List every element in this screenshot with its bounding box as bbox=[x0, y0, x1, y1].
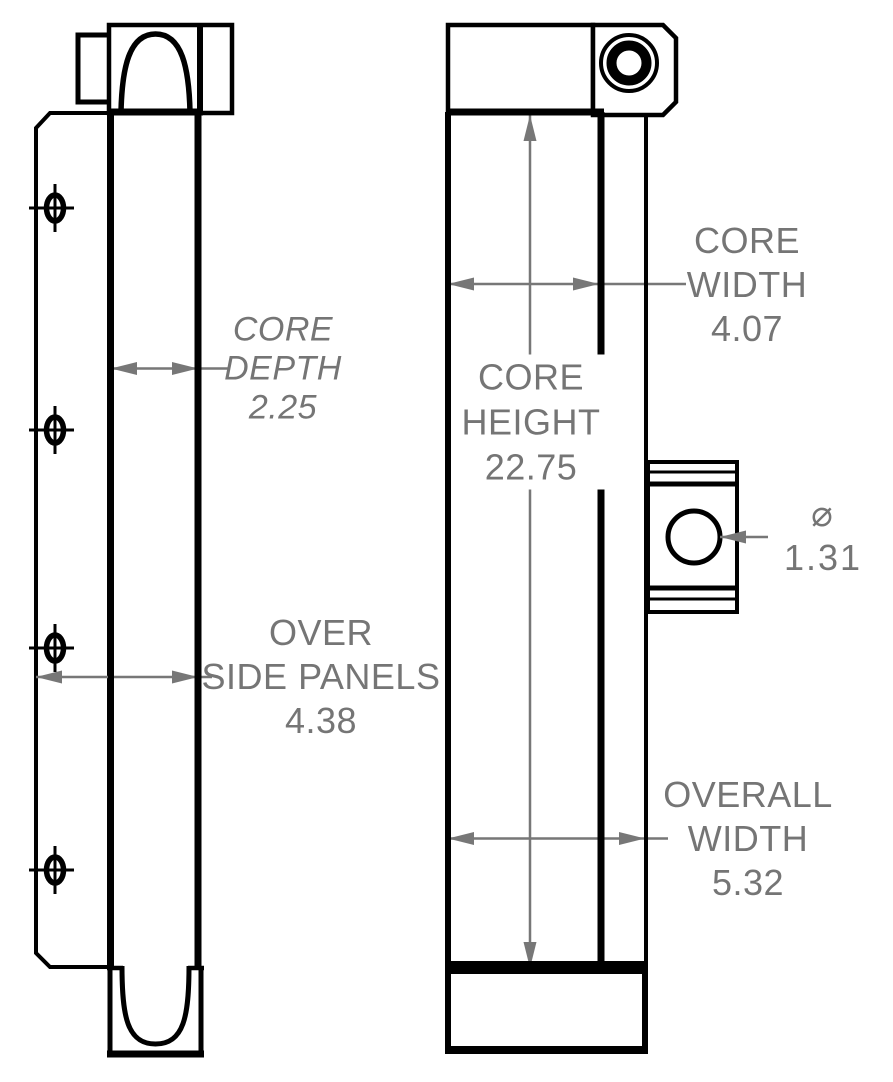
overall-width-arrow-left bbox=[448, 832, 474, 845]
top-port-ring bbox=[612, 46, 647, 81]
core-depth-arrow-right bbox=[172, 362, 198, 375]
core-width-label: CORE WIDTH 4.07 bbox=[687, 219, 807, 351]
side-view-mounting-panel bbox=[36, 113, 109, 967]
front-view-bottom-tank bbox=[448, 974, 645, 1050]
technical-drawing-svg bbox=[0, 0, 893, 1082]
core-width-arrow-left bbox=[448, 278, 474, 291]
side-view bbox=[36, 25, 232, 1054]
front-view-top-tank bbox=[448, 25, 593, 112]
overall-width-label: OVERALL WIDTH 5.32 bbox=[663, 773, 833, 905]
core-height-arrow-up bbox=[524, 115, 537, 141]
structural-lines bbox=[107, 25, 648, 1054]
core-width-arrow-right bbox=[573, 278, 599, 291]
overall-width-arrow-right bbox=[619, 832, 645, 845]
technical-drawing-canvas: CORE DEPTH 2.25 OVER SIDE PANELS 4.38 CO… bbox=[0, 0, 893, 1082]
front-view-core-bottom-bar bbox=[445, 961, 648, 974]
core-depth-label: CORE DEPTH 2.25 bbox=[224, 311, 342, 428]
core-depth-arrow-left bbox=[111, 362, 137, 375]
side-port-circle bbox=[668, 511, 720, 563]
over-side-panels-label: OVER SIDE PANELS 4.38 bbox=[202, 611, 441, 743]
over-side-panels-arrow-right bbox=[172, 671, 198, 684]
core-height-label: CORE HEIGHT 22.75 bbox=[455, 355, 606, 490]
port-diameter-label: ⌀ 1.31 bbox=[784, 492, 862, 580]
side-view-top-block bbox=[78, 35, 110, 102]
